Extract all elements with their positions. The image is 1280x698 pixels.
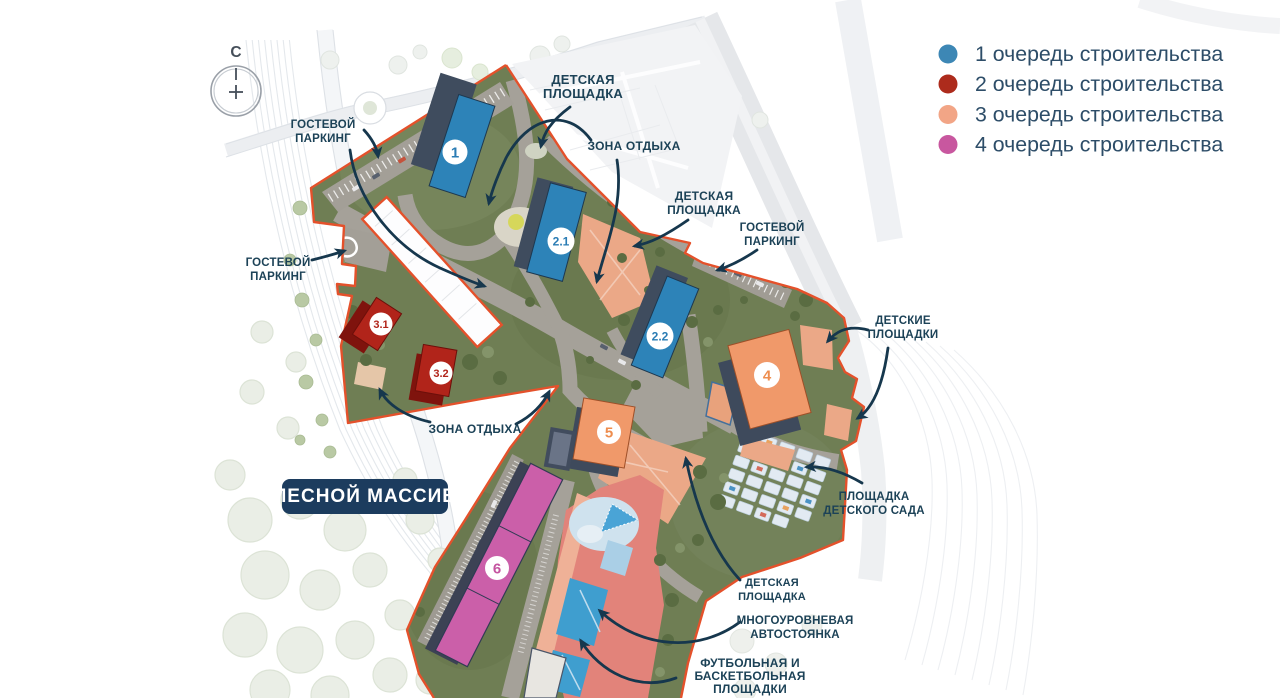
svg-text:2.1: 2.1 [553, 235, 570, 249]
svg-text:АВТОСТОЯНКА: АВТОСТОЯНКА [750, 629, 840, 641]
svg-text:1: 1 [451, 145, 459, 162]
svg-text:ПЛОЩАДКА: ПЛОЩАДКА [738, 591, 806, 603]
svg-text:ГОСТЕВОЙ: ГОСТЕВОЙ [246, 256, 311, 269]
svg-text:1 очередь строительства: 1 очередь строительства [975, 42, 1223, 66]
svg-text:ПЛОЩАДКИ: ПЛОЩАДКИ [868, 329, 939, 341]
svg-text:ПЛОЩАДКИ: ПЛОЩАДКИ [713, 682, 787, 696]
svg-text:С: С [230, 44, 241, 61]
svg-text:ПАРКИНГ: ПАРКИНГ [295, 133, 351, 145]
svg-text:2.2: 2.2 [652, 330, 669, 344]
svg-text:6: 6 [493, 561, 501, 578]
svg-text:4: 4 [763, 368, 772, 385]
svg-text:ПЛОЩАДКА: ПЛОЩАДКА [667, 203, 741, 217]
svg-text:3.2: 3.2 [433, 368, 448, 380]
svg-text:3.1: 3.1 [373, 319, 388, 331]
svg-text:ДЕТСКИЕ: ДЕТСКИЕ [875, 315, 931, 327]
svg-text:2 очередь строительства: 2 очередь строительства [975, 72, 1223, 96]
svg-text:3 очередь строительства: 3 очередь строительства [975, 103, 1223, 127]
svg-text:ДЕТСКОГО САДА: ДЕТСКОГО САДА [823, 505, 925, 517]
svg-text:МНОГОУРОВНЕВАЯ: МНОГОУРОВНЕВАЯ [737, 615, 854, 627]
svg-text:ПАРКИНГ: ПАРКИНГ [250, 271, 306, 283]
svg-text:ЗОНА ОТДЫХА: ЗОНА ОТДЫХА [588, 139, 681, 153]
svg-text:ФУТБОЛЬНАЯ И: ФУТБОЛЬНАЯ И [700, 656, 800, 670]
svg-text:ПЛОЩАДКА: ПЛОЩАДКА [839, 491, 910, 503]
svg-text:ГОСТЕВОЙ: ГОСТЕВОЙ [740, 221, 805, 234]
svg-text:ЗОНА ОТДЫХА: ЗОНА ОТДЫХА [429, 422, 522, 436]
svg-text:ДЕТСКАЯ: ДЕТСКАЯ [551, 72, 614, 87]
svg-text:ПЛОЩАДКА: ПЛОЩАДКА [543, 86, 623, 101]
svg-text:ДЕТСКАЯ: ДЕТСКАЯ [675, 189, 734, 203]
svg-text:ПАРКИНГ: ПАРКИНГ [744, 236, 800, 248]
svg-text:ДЕТСКАЯ: ДЕТСКАЯ [745, 577, 799, 589]
svg-text:ГОСТЕВОЙ: ГОСТЕВОЙ [291, 118, 356, 131]
svg-text:4 очередь строительства: 4 очередь строительства [975, 133, 1223, 157]
svg-text:БАСКЕТБОЛЬНАЯ: БАСКЕТБОЛЬНАЯ [694, 669, 805, 683]
svg-text:5: 5 [605, 425, 613, 442]
svg-text:ЛЕСНОЙ МАССИВ: ЛЕСНОЙ МАССИВ [273, 485, 457, 507]
